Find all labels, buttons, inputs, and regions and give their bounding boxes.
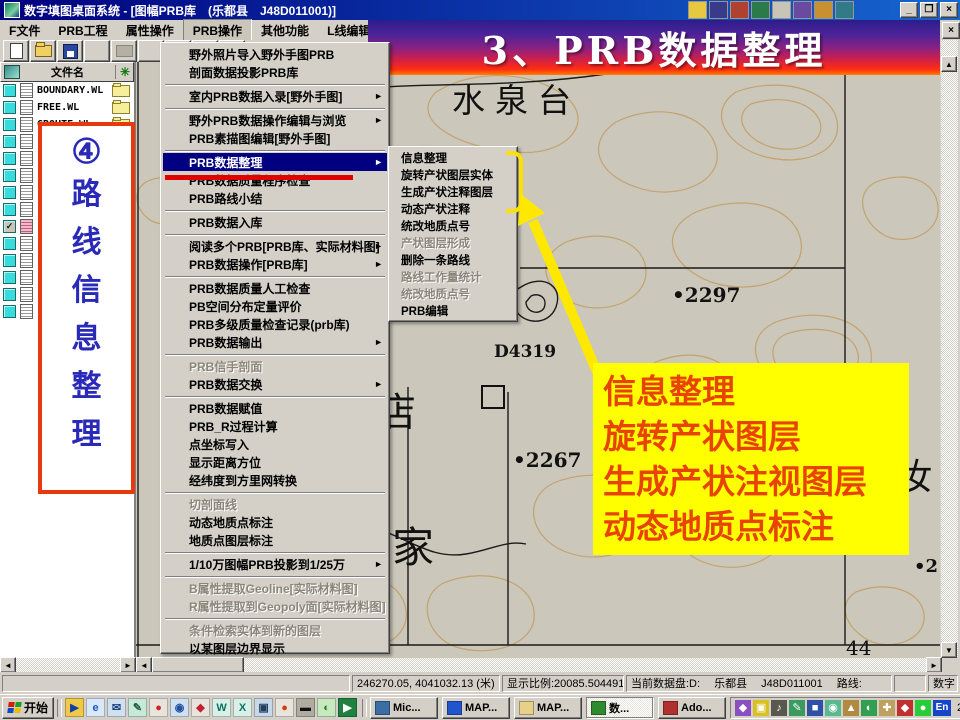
menu-item-label: 1/10万图幅PRB投影到1/25万 <box>189 556 345 573</box>
tray-search-icon[interactable]: ◉ <box>825 700 841 716</box>
menu-item-label: 野外照片导入野外手图PRB <box>189 46 334 63</box>
menu-item[interactable]: 野外PRB数据操作编辑与浏览 ► <box>163 111 387 129</box>
submenu-item[interactable]: 旋转产状图层实体 <box>391 166 515 183</box>
menu-item-label: PRB素描图编辑[野外手图] <box>189 130 330 147</box>
menu-item-label: PRB数据质量人工检查 <box>189 280 310 297</box>
windows-logo-icon <box>7 702 22 713</box>
task-window-icon <box>663 701 678 715</box>
menu-item[interactable]: PB空间分布定量评价 ► <box>163 297 387 315</box>
filename-column-header: 文件名 <box>20 64 115 80</box>
close-button[interactable]: × <box>940 2 958 18</box>
layer-panel-header: 文件名 ✳ <box>0 62 134 82</box>
outlook-icon[interactable]: ✉ <box>107 698 126 717</box>
menu-item[interactable]: PRB数据输出 ► <box>163 333 387 351</box>
save-button[interactable] <box>57 40 83 62</box>
panel-horizontal-scrollbar[interactable]: ◄ ► <box>0 658 136 672</box>
callout-char: 信 <box>72 267 102 315</box>
menu-item-label: PRB多级质量检查记录(prb库) <box>189 316 350 333</box>
task-button[interactable]: MAP... <box>514 697 582 719</box>
annotation-box: 信息整理旋转产状图层生成产状注视图层动态地质点标注 <box>593 363 909 555</box>
menu-item-label: 地质点图层标注 <box>189 532 273 549</box>
floating-tool-icon[interactable] <box>688 1 707 19</box>
step-callout-box: ④ 路 线 信 息 整 理 <box>38 122 135 494</box>
file-icon <box>20 253 33 268</box>
task-button-label: Ado... <box>681 702 712 714</box>
tray-app6-icon[interactable]: ▲ <box>843 700 859 716</box>
task-window-icon <box>519 701 534 715</box>
menu-item-label: PRB数据整理 <box>189 154 262 171</box>
start-label: 开始 <box>24 699 48 716</box>
layer-checkbox[interactable] <box>3 118 16 131</box>
language-indicator[interactable]: En <box>933 700 951 716</box>
layer-checkbox[interactable] <box>3 220 16 233</box>
submenu-item[interactable]: 统改地质点号 <box>391 217 515 234</box>
menubar-item[interactable]: PRB操作 <box>183 19 252 42</box>
menu-item[interactable]: PRB_R过程计算 ► <box>163 417 387 435</box>
status-current-disk: 当前数据盘:D: 乐都县 J48D011001 路线: <box>626 675 892 692</box>
tv-icon[interactable]: ▶ <box>338 698 357 717</box>
submenu-item[interactable]: 删除一条路线 <box>391 251 515 268</box>
menu-item[interactable]: 室内PRB数据入录[野外手图] ► <box>163 87 387 105</box>
menu-item-label: PRB路线小结 <box>189 190 262 207</box>
word-icon[interactable]: W <box>212 698 231 717</box>
submenu-item-label: 路线工作量统计 <box>401 269 482 285</box>
taskbar-separator <box>362 699 367 717</box>
submenu-item-label: 统改地质点号 <box>401 286 470 302</box>
open-button[interactable] <box>30 40 56 62</box>
slide-page-number: 44 <box>846 636 871 660</box>
taskbar-separator <box>57 699 62 717</box>
window-title: 数字填图桌面系统 - [图幅PRB库 (乐都县 J48D011001)] <box>24 2 336 19</box>
print-button[interactable] <box>111 40 137 62</box>
status-empty-panel <box>894 675 926 692</box>
BOUNDARY.WL[interactable]: BOUNDARY.WL <box>0 82 134 99</box>
status-coordinates: 246270.05, 4041032.13 (米) <box>352 675 500 692</box>
excel-icon[interactable]: X <box>233 698 252 717</box>
annotation-line: 动态地质点标注 <box>603 504 899 549</box>
file-icon <box>20 151 33 166</box>
callout-char: 理 <box>72 411 102 459</box>
prb-operations-menu: 野外照片导入野外手图PRB ► 剖面数据投影PRB库 ► ► 室内PRB数据入录… <box>160 42 390 654</box>
file-icon <box>20 219 33 234</box>
display-icon[interactable]: ▣ <box>254 698 273 717</box>
quick-launch-bar: ▶e✉✎●◉◆WX▣●▬◐▶ <box>65 698 359 717</box>
floating-tool-icon[interactable] <box>730 1 749 19</box>
document-close-button[interactable]: × <box>942 22 960 39</box>
menu-item-label: B属性提取Geoline[实际材料图] <box>189 580 358 597</box>
submenu-arrow-icon: ► <box>374 91 383 101</box>
menu-item[interactable]: 阅读多个PRB[PRB库、实际材料图] ► <box>163 237 387 255</box>
menu-item-label: 显示距离方位 <box>189 454 261 471</box>
status-bar: 246270.05, 4041032.13 (米) 显示比例:20085.504… <box>0 672 960 694</box>
layer-checkbox[interactable] <box>3 254 16 267</box>
tray-app5-icon[interactable]: ■ <box>807 700 823 716</box>
layer-checkbox[interactable] <box>3 305 16 318</box>
menu-item[interactable]: R属性提取到Geopoly面[实际材料图] ► <box>163 597 387 615</box>
annotation-line: 旋转产状图层 <box>603 414 899 459</box>
submenu-item-label: 产状图层形成 <box>401 235 470 251</box>
app-icon <box>4 2 20 18</box>
tray-app1-icon[interactable]: ◆ <box>735 700 751 716</box>
menu-item-label: 经纬度到方里网转换 <box>189 472 297 489</box>
task-button[interactable]: Mic... <box>370 697 438 719</box>
menu-item[interactable]: 以某图层边界显示 ► <box>163 639 387 657</box>
map-label-elevation-2267: •2267 <box>513 448 581 472</box>
menu-item-label: PRB_R过程计算 <box>189 418 278 435</box>
submenu-arrow-icon: ► <box>374 559 383 569</box>
file-name: FREE.WL <box>37 102 112 113</box>
map-label-shuiquantai: 水泉台 <box>452 74 581 122</box>
floating-tool-icon[interactable] <box>835 1 854 19</box>
menu-item[interactable]: 剖面数据投影PRB库 ► <box>163 63 387 81</box>
tray-icons: ◆▣♪✎■◉▲◐✚◆● <box>735 700 931 716</box>
menu-item[interactable]: B属性提取Geoline[实际材料图] ► <box>163 579 387 597</box>
menu-item[interactable]: 野外照片导入野外手图PRB ► <box>163 45 387 63</box>
scrollbar-thumb[interactable] <box>152 657 244 673</box>
menu-item-label: 阅读多个PRB[PRB库、实际材料图] <box>189 238 380 255</box>
menubar-item[interactable]: F文件 <box>0 20 49 41</box>
task-button-label: 数... <box>609 700 629 716</box>
menu-item[interactable]: 动态地质点标注 ► <box>163 513 387 531</box>
layer-checkbox[interactable] <box>3 271 16 284</box>
layer-checkbox[interactable] <box>3 84 16 97</box>
tray-app4-icon[interactable]: ✎ <box>789 700 805 716</box>
file-icon <box>20 168 33 183</box>
submenu-item[interactable]: 信息整理 <box>391 149 515 166</box>
file-icon <box>20 83 33 98</box>
menu-item[interactable]: PRB数据操作[PRB库] ► <box>163 255 387 273</box>
menubar-item[interactable]: 属性操作 <box>117 20 183 41</box>
tray-app2-icon[interactable]: ▣ <box>753 700 769 716</box>
menu-item[interactable]: 经纬度到方里网转换 ► <box>163 471 387 489</box>
file-icon <box>20 236 33 251</box>
search-icon[interactable]: ◉ <box>170 698 189 717</box>
tray-scroll-icon[interactable]: ✚ <box>879 700 895 716</box>
menu-item[interactable]: PRB信手剖面 ► <box>163 357 387 375</box>
step-number: ④ <box>71 134 101 171</box>
file-icon <box>20 134 33 149</box>
slide-title-banner: 3、PRB数据整理 <box>368 20 940 75</box>
task-button-label: MAP... <box>465 702 497 714</box>
task-button-label: Mic... <box>393 702 421 714</box>
menu-item[interactable]: PRB数据质量人工检查 ► <box>163 279 387 297</box>
menu-item-label: 以某图层边界显示 <box>189 640 285 657</box>
media-player-icon[interactable]: ▶ <box>65 698 84 717</box>
status-scale: 显示比例:20085.504491 <box>502 675 624 692</box>
map-label-elevation-2297: •2297 <box>672 283 740 307</box>
menubar-item[interactable]: 其他功能 <box>252 20 318 41</box>
menu-item-label: PRB数据赋值 <box>189 400 262 417</box>
layer-checkbox[interactable] <box>3 288 16 301</box>
tray-app3-icon[interactable]: ♪ <box>771 700 787 716</box>
callout-char: 息 <box>72 315 102 363</box>
submenu-arrow-icon: ► <box>374 241 383 251</box>
task-window-icon <box>591 701 606 715</box>
layer-checkbox[interactable] <box>3 237 16 250</box>
scroll-right-icon[interactable]: ► <box>120 657 136 673</box>
floating-tool-icon[interactable] <box>814 1 833 19</box>
tray-disc-icon[interactable]: ◐ <box>861 700 877 716</box>
menu-item[interactable]: 1/10万图幅PRB投影到1/25万 ► <box>163 555 387 573</box>
annotation-line: 生成产状注视图层 <box>603 459 899 504</box>
layer-tool-icon[interactable]: ✳ <box>115 65 130 79</box>
task-buttons: Mic... MAP... MAP... 数... <box>370 697 730 719</box>
submenu-arrow-icon: ► <box>374 379 383 389</box>
start-button[interactable]: 开始 <box>2 697 54 719</box>
minimize-button[interactable]: _ <box>900 2 918 18</box>
balloon2-icon[interactable]: ● <box>275 698 294 717</box>
restore-button[interactable]: ❐ <box>920 2 938 18</box>
new-button[interactable] <box>3 40 29 62</box>
scroll-down-icon[interactable]: ▼ <box>941 642 957 658</box>
folder-icon[interactable] <box>112 102 130 114</box>
scroll-right-icon[interactable]: ► <box>926 657 942 673</box>
layer-checkbox[interactable] <box>3 203 16 216</box>
prb-data-sorting-submenu: 信息整理 旋转产状图层实体 生成产状注释图层 动态产状注释 统改地质点号 产状图… <box>388 146 518 322</box>
layer-checkbox[interactable] <box>3 135 16 148</box>
menu-item-label: PRB数据入库 <box>189 214 262 231</box>
floating-tool-icon[interactable] <box>793 1 812 19</box>
status-right-panel: 数字 <box>928 675 958 692</box>
menu-item[interactable]: 显示距离方位 ► <box>163 453 387 471</box>
file-icon <box>20 202 33 217</box>
submenu-item-label: 信息整理 <box>401 150 447 166</box>
menu-item-label: 点坐标写入 <box>189 436 249 453</box>
file-icon <box>20 304 33 319</box>
submenu-item-label: 删除一条路线 <box>401 252 470 268</box>
menu-item-label: 动态地质点标注 <box>189 514 273 531</box>
layer-checkbox[interactable] <box>3 101 16 114</box>
file-icon <box>20 287 33 302</box>
taskbar-clock: 22:58 <box>953 702 960 714</box>
menu-item[interactable]: PRB数据赋值 ► <box>163 399 387 417</box>
window-controls: _ ❐ × <box>900 2 958 18</box>
file-icon <box>20 185 33 200</box>
menu-item[interactable]: PRB数据整理 ► <box>163 153 387 171</box>
tray-shield-icon[interactable]: ◆ <box>897 700 913 716</box>
task-window-icon <box>375 701 390 715</box>
map-horizontal-scrollbar[interactable]: ◄ ► <box>136 658 942 672</box>
submenu-item-label: 统改地质点号 <box>401 218 470 234</box>
menu-item-label: 剖面数据投影PRB库 <box>189 64 298 81</box>
slide-title-text: 3、PRB数据整理 <box>482 20 827 75</box>
file-icon <box>20 100 33 115</box>
system-tray: ◆▣♪✎■◉▲◐✚◆● En 22:58 <box>730 697 960 719</box>
internet-explorer-icon[interactable]: e <box>86 698 105 717</box>
task-button[interactable]: 数... <box>586 697 654 719</box>
balloon-icon[interactable]: ● <box>149 698 168 717</box>
menu-item-label: PRB数据操作[PRB库] <box>189 256 308 273</box>
submenu-item-label: 旋转产状图层实体 <box>401 167 493 183</box>
submenu-arrow-icon: ► <box>374 337 383 347</box>
scroll-left-icon[interactable]: ◄ <box>136 657 152 673</box>
layer-checkbox[interactable] <box>3 186 16 199</box>
submenu-item[interactable]: 动态产状注释 <box>391 200 515 217</box>
callout-char: 路 <box>72 171 102 219</box>
callout-char: 线 <box>72 219 102 267</box>
submenu-arrow-icon: ► <box>374 259 383 269</box>
map-label-point-d4319: D4319 <box>494 342 556 362</box>
submenu-item-label: 动态产状注释 <box>401 201 470 217</box>
task-button[interactable]: MAP... <box>442 697 510 719</box>
menu-item-label: R属性提取到Geopoly面[实际材料图] <box>189 598 386 615</box>
menu-item[interactable]: PRB数据交换 ► <box>163 375 387 393</box>
menu-item[interactable]: 条件检索实体到新的图层 ► <box>163 621 387 639</box>
submenu-item-label: PRB编辑 <box>401 303 448 319</box>
floating-tool-icon[interactable] <box>772 1 791 19</box>
file-icon <box>20 270 33 285</box>
menu-item[interactable]: PRB多级质量检查记录(prb库) ► <box>163 315 387 333</box>
layer-checkbox[interactable] <box>3 152 16 165</box>
map-label-jia: 家 <box>392 514 434 575</box>
menu-item-label: PRB信手剖面 <box>189 358 262 375</box>
vertical-scrollbar[interactable]: ▲ ▼ <box>941 40 958 658</box>
menu-item[interactable]: 地质点图层标注 ► <box>163 531 387 549</box>
menu-item[interactable]: PRB数据质量程序检查 ► <box>163 171 387 189</box>
task-button-label: MAP... <box>537 702 569 714</box>
chip-icon[interactable]: ▬ <box>296 698 315 717</box>
menu-item[interactable]: 切剖面线 ► <box>163 495 387 513</box>
floating-tool-icon[interactable] <box>709 1 728 19</box>
cd-player-icon[interactable]: ◐ <box>317 698 336 717</box>
file-icon <box>20 117 33 132</box>
menubar-item[interactable]: PRB工程 <box>49 20 116 41</box>
scroll-up-icon[interactable]: ▲ <box>941 56 957 72</box>
submenu-item[interactable]: 统改地质点号 <box>391 285 515 302</box>
menu-item[interactable]: PRB路线小结 ► <box>163 189 387 207</box>
taskbar: 开始 ▶e✉✎●◉◆WX▣●▬◐▶ Mic... MAP... <box>0 694 960 720</box>
menu-item-label: 条件检索实体到新的图层 <box>189 622 321 639</box>
scroll-left-icon[interactable]: ◄ <box>0 657 16 673</box>
wordpad-icon[interactable]: ✎ <box>128 698 147 717</box>
submenu-item[interactable]: 产状图层形成 <box>391 234 515 251</box>
menu-item-label: PRB数据输出 <box>189 334 262 351</box>
map-label-elevation-partial: •2 <box>914 556 938 577</box>
menu-item-label: PRB数据交换 <box>189 376 262 393</box>
file-name: BOUNDARY.WL <box>37 85 112 96</box>
printer-icon[interactable] <box>4 65 20 79</box>
menu-item[interactable]: PRB素描图编辑[野外手图] ► <box>163 129 387 147</box>
flag-icon[interactable]: ◆ <box>191 698 210 717</box>
task-button[interactable]: Ado... <box>658 697 726 719</box>
highlight-bracket <box>506 151 523 213</box>
menu-item[interactable]: PRB数据入库 ► <box>163 213 387 231</box>
floating-tool-icon[interactable] <box>751 1 770 19</box>
FREE.WL[interactable]: FREE.WL <box>0 99 134 116</box>
floating-toolbar <box>688 1 854 19</box>
submenu-item[interactable]: 生成产状注释图层 <box>391 183 515 200</box>
menu-item-label: PB空间分布定量评价 <box>189 298 302 315</box>
map-square-marker <box>481 385 505 409</box>
task-window-icon <box>447 701 462 715</box>
app-window: 数字填图桌面系统 - [图幅PRB库 (乐都县 J48D011001)] _ ❐… <box>0 0 960 720</box>
menu-item-label: 野外PRB数据操作编辑与浏览 <box>189 112 346 129</box>
menu-item-label: 室内PRB数据入录[野外手图] <box>189 88 342 105</box>
status-message-panel <box>2 675 350 692</box>
callout-char: 整 <box>72 363 102 411</box>
menu-item[interactable]: 点坐标写入 ► <box>163 435 387 453</box>
annotation-line: 信息整理 <box>603 369 899 414</box>
folder-icon[interactable] <box>112 85 130 97</box>
menu-item-label: 切剖面线 <box>189 496 237 513</box>
submenu-item[interactable]: 路线工作量统计 <box>391 268 515 285</box>
layer-checkbox[interactable] <box>3 169 16 182</box>
submenu-item-label: 生成产状注释图层 <box>401 184 493 200</box>
submenu-arrow-icon: ► <box>374 115 383 125</box>
submenu-arrow-icon: ► <box>374 157 383 167</box>
tray-status-icon[interactable]: ● <box>915 700 931 716</box>
submenu-item[interactable]: PRB编辑 <box>391 302 515 319</box>
